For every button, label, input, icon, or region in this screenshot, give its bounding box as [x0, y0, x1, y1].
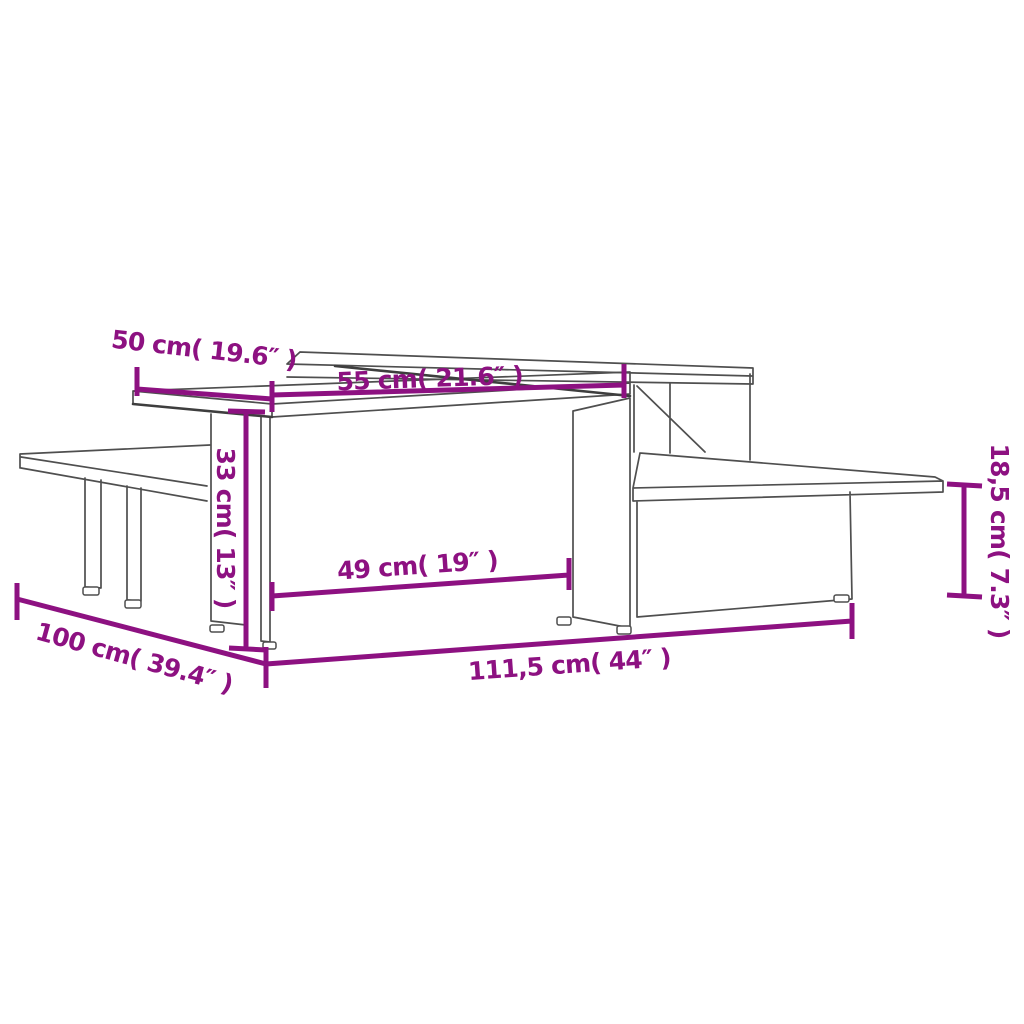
right-low-table-outline	[633, 453, 943, 617]
table-foot	[557, 617, 571, 625]
coffee-table-diagram-canvas: 50 cm( 19.6″ ) 55 cm( 21.6″ ) 33 cm( 13″…	[0, 0, 1024, 1024]
left-low-table-outline	[20, 445, 210, 601]
dimension-diagram: 50 cm( 19.6″ ) 55 cm( 21.6″ ) 33 cm( 13″…	[0, 0, 1024, 1024]
dimension-lines	[17, 364, 982, 688]
label-table-height: 33 cm( 13″ )	[211, 448, 240, 609]
front-table-left-support	[261, 417, 270, 642]
dim-18-5cm-line	[947, 484, 982, 597]
table-foot	[617, 626, 631, 634]
table-foot	[125, 600, 141, 608]
table-foot	[834, 595, 849, 602]
furniture-outline	[20, 352, 943, 649]
table-foot	[83, 587, 99, 595]
table-foot	[210, 625, 224, 632]
front-table-right-support	[573, 385, 634, 628]
rear-table-right-support	[637, 374, 750, 460]
label-shelf-height: 18,5 cm( 7.3″ )	[985, 444, 1014, 639]
